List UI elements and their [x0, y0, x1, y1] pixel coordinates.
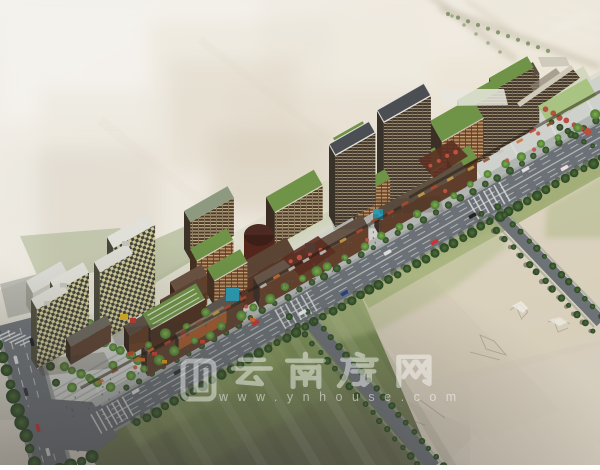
svg-text:www.ynhouse.com: www.ynhouse.com [218, 390, 466, 404]
